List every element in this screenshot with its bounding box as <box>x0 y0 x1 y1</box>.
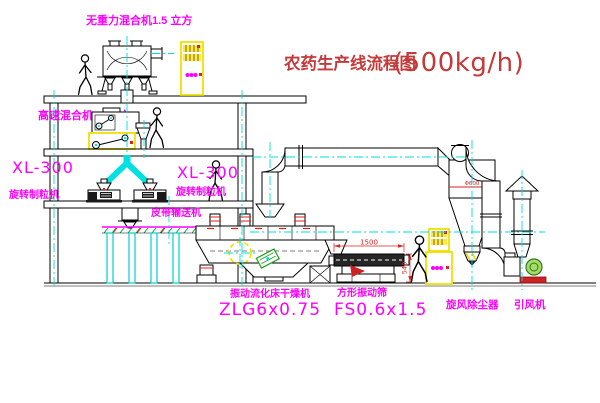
control-cabinet-right-lower <box>426 252 452 284</box>
control-cabinet-top <box>181 42 203 95</box>
gravity-free-mixer <box>97 41 174 103</box>
building-floor2-slab <box>44 149 253 156</box>
fan-motor <box>526 259 542 275</box>
belt-conveyor <box>102 227 200 283</box>
fluid-bed-dryer <box>196 214 334 283</box>
rotary-granulator-right <box>132 179 168 203</box>
gravity-free-mixer-label: 无重力混合机1.5 立方 <box>85 13 192 27</box>
indicator-dot-2 <box>199 73 202 76</box>
process-flow-diagram: 高速混合机3.5立方 <box>0 0 600 403</box>
cad-drawing-canvas: 高速混合机3.5立方 <box>0 0 600 403</box>
screen-length-dim: 1500 <box>360 239 378 247</box>
conveyor-leg <box>129 233 135 283</box>
high-speed-mixer <box>86 108 153 149</box>
dryer-top-nozzles <box>209 214 306 226</box>
granulator-left-name: 旋转制粒机 <box>8 188 59 201</box>
indicator-dot <box>197 45 200 48</box>
screen-name-label: 方形振动筛 <box>337 286 387 299</box>
screen-model-label: FS0.6x1.5 <box>334 300 427 320</box>
screen-height-dim: 540 <box>401 262 409 274</box>
belt-conveyor-label: 皮带输送机 <box>150 206 201 219</box>
dryer-hopper <box>240 263 308 277</box>
rotary-granulator-left <box>86 179 122 203</box>
granulator-left-model: XL-300 <box>12 158 74 177</box>
granulator-mid-name: 旋转制粒机 <box>175 185 226 198</box>
stack-and-fan <box>504 176 546 283</box>
conveyor-leg <box>107 233 113 283</box>
fan-label: 引风机 <box>514 298 546 311</box>
conveyor-leg <box>151 233 157 283</box>
person-icon <box>411 236 427 282</box>
fan-base <box>520 277 546 283</box>
cyclone-diameter-note: Φ600 <box>465 181 480 187</box>
floor-discharge-chute <box>118 208 142 228</box>
feed-hopper <box>136 123 150 128</box>
dryer-model-label: ZLG6x0.75 <box>219 300 321 320</box>
granulator-mid-model: XL-300 <box>177 163 239 182</box>
person-icon <box>79 55 93 95</box>
screen-feed-funnel <box>325 240 347 254</box>
exhaust-duct <box>256 145 452 217</box>
person-icon <box>150 108 164 148</box>
conveyor-leg <box>173 233 179 283</box>
building-roof-slab <box>44 96 306 103</box>
fan-inlet <box>504 257 520 276</box>
vibration-motor <box>200 265 213 275</box>
dryer-name-label: 振动流化床干燥机 <box>230 287 310 300</box>
cyclone-label: 旋风除尘器 <box>445 298 499 311</box>
drawing-title-capacity: (500kg/h) <box>393 48 524 78</box>
cyclone-dust-collector <box>449 145 515 272</box>
belt-hatch <box>104 228 196 233</box>
